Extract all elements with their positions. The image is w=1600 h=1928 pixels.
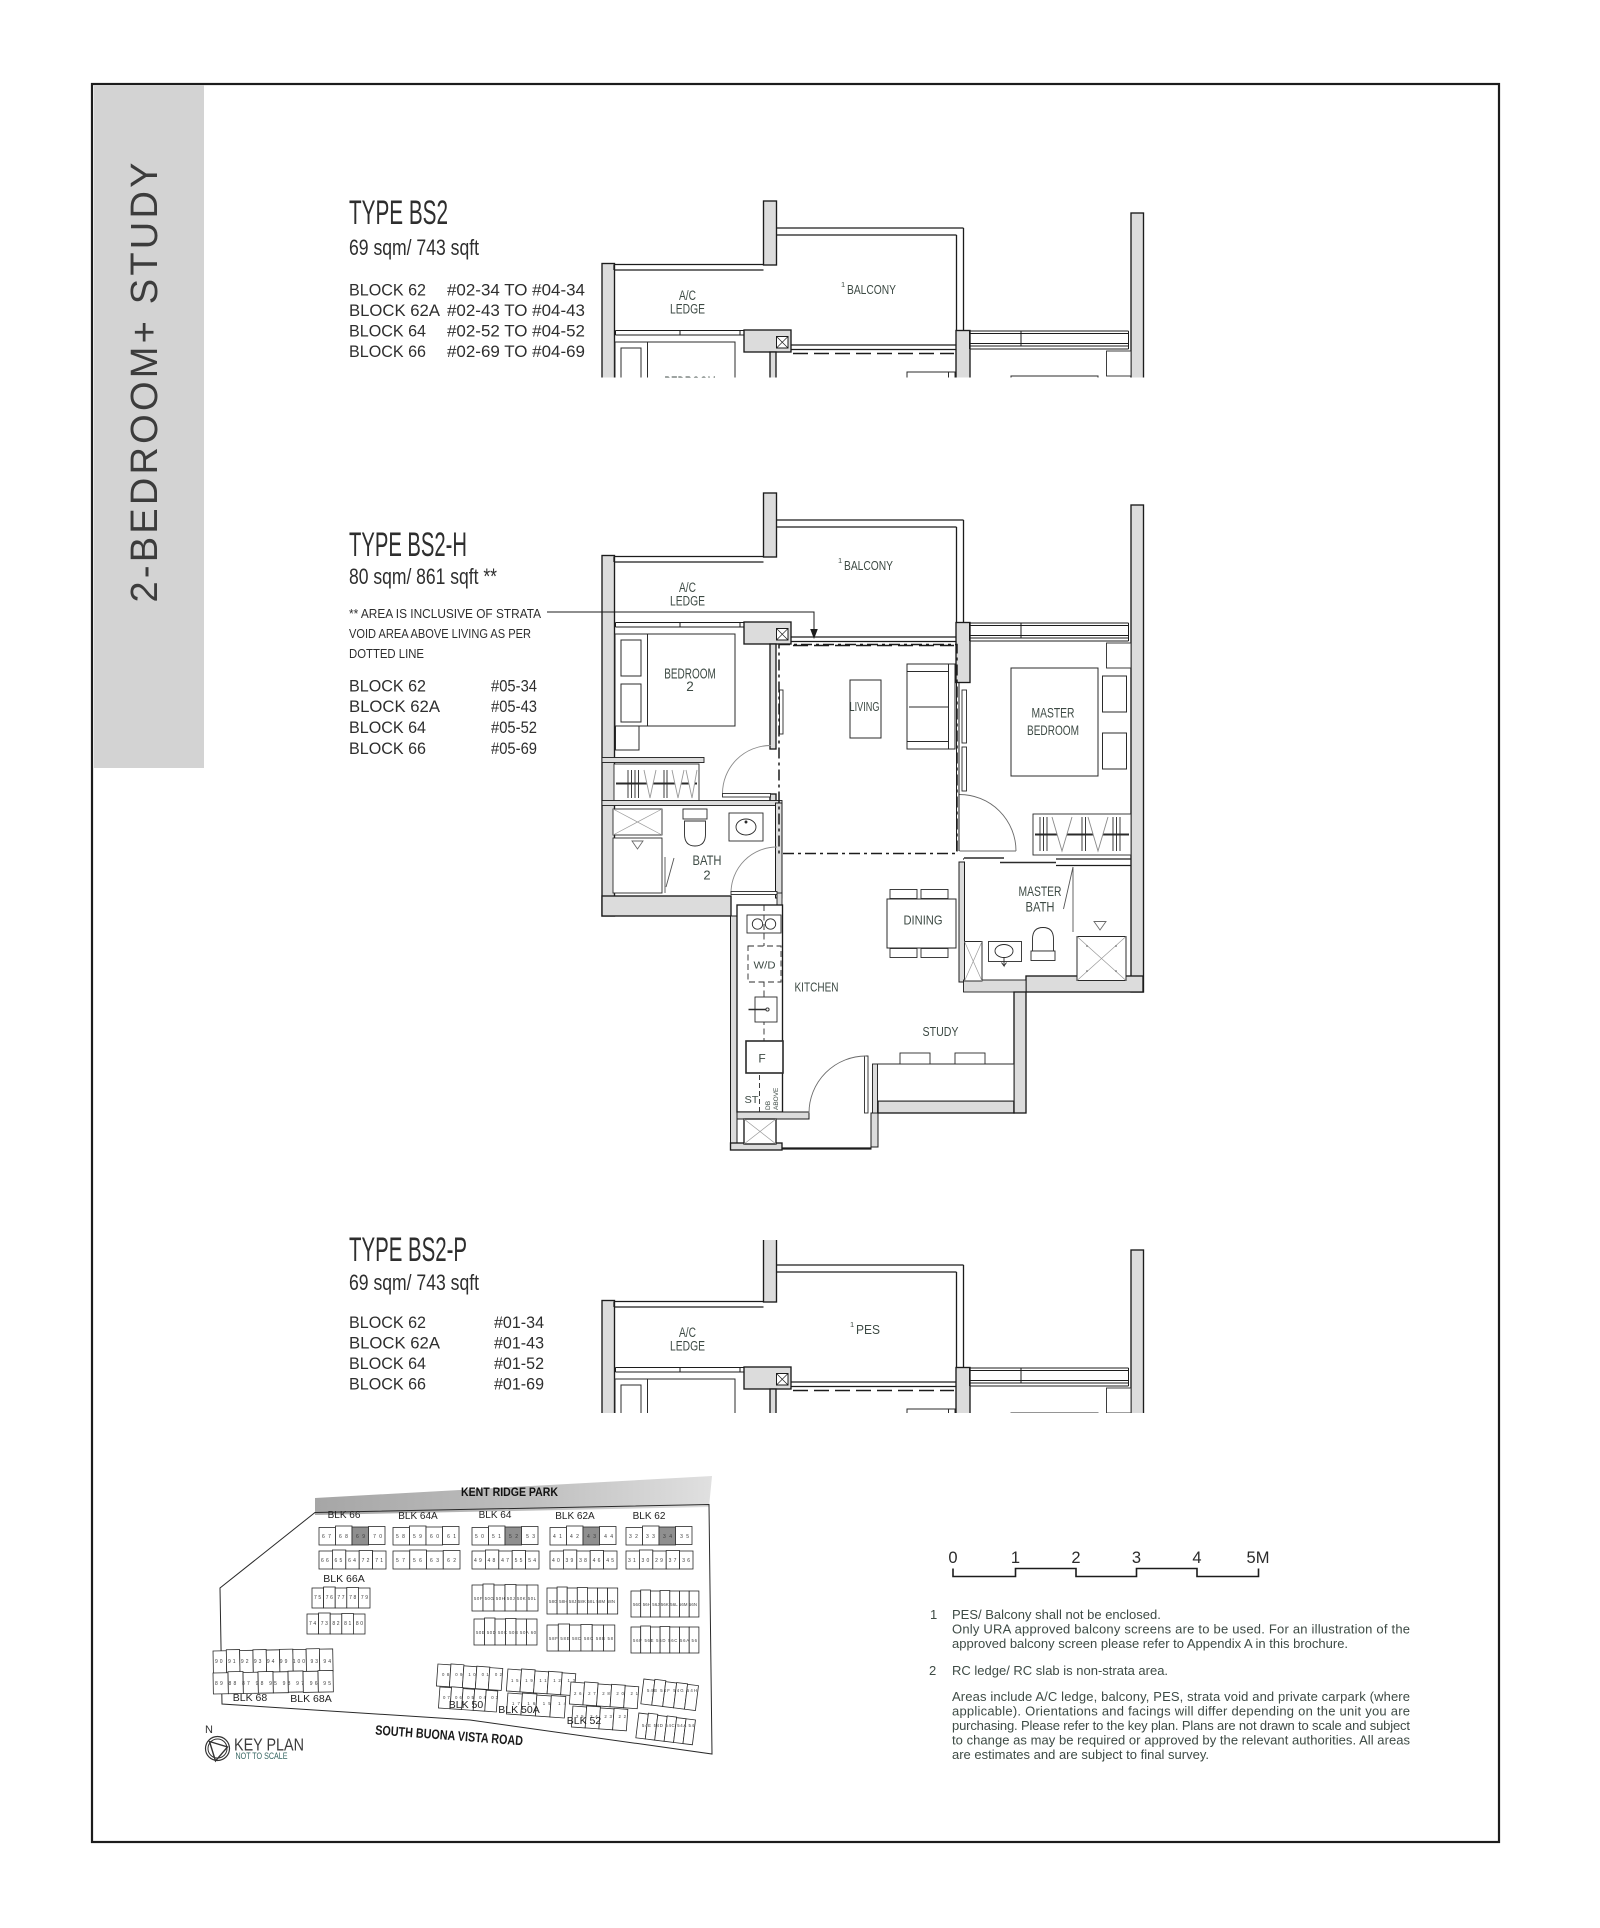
svg-text:80 sqm/ 861 sqft **: 80 sqm/ 861 sqft ** (349, 564, 497, 589)
svg-text:58F 58E 58D 58C 58B 58: 58F 58E 58D 58C 58B 58 (549, 1636, 614, 1641)
svg-text:BLOCK 64: BLOCK 64 (349, 718, 426, 737)
svg-text:50E 50D 50C 50B 50A 60: 50E 50D 50C 50B 50A 60 (476, 1630, 537, 1635)
svg-text:BALCONY: BALCONY (844, 558, 893, 573)
svg-text:BLOCK 62: BLOCK 62 (349, 1313, 426, 1332)
svg-text:#05-43: #05-43 (491, 697, 537, 716)
svg-text:BLOCK 62: BLOCK 62 (349, 281, 426, 300)
svg-text:DOTTED LINE: DOTTED LINE (349, 647, 424, 661)
svg-text:2: 2 (1071, 1549, 1080, 1567)
svg-text:#05-34: #05-34 (491, 677, 537, 696)
svg-text:BLOCK 62A: BLOCK 62A (349, 301, 441, 320)
svg-text:#05-52: #05-52 (491, 718, 537, 737)
svg-text:BLK 62A: BLK 62A (555, 1511, 595, 1522)
svg-text:BLK 62: BLK 62 (633, 1511, 666, 1522)
svg-text:5M: 5M (1247, 1549, 1270, 1567)
svg-text:4: 4 (1192, 1549, 1201, 1567)
svg-text:TYPE BS2-P: TYPE BS2-P (349, 1231, 467, 1269)
svg-text:RC ledge/ RC slab is non-strat: RC ledge/ RC slab is non-strata area. (952, 1663, 1168, 1678)
svg-text:BLOCK 64: BLOCK 64 (349, 322, 426, 341)
svg-text:2-BEDROOM+ STUDY: 2-BEDROOM+ STUDY (124, 159, 166, 603)
svg-text:TYPE BS2: TYPE BS2 (349, 194, 448, 232)
svg-text:BLK 66: BLK 66 (328, 1510, 361, 1521)
svg-text:#02-69 TO #04-69: #02-69 TO #04-69 (447, 342, 585, 361)
svg-text:approved balcony screen please: approved balcony screen please refer to … (952, 1636, 1348, 1651)
svg-text:69 sqm/ 743 sqft: 69 sqm/ 743 sqft (349, 235, 479, 260)
svg-text:NOT TO SCALE: NOT TO SCALE (236, 1751, 288, 1762)
svg-text:74 73 82 81 80: 74 73 82 81 80 (309, 1621, 363, 1627)
svg-text:#01-69: #01-69 (494, 1375, 544, 1394)
svg-text:1: 1 (930, 1607, 937, 1622)
svg-text:VOID AREA ABOVE LIVING AS PER: VOID AREA ABOVE LIVING AS PER (349, 627, 531, 641)
svg-text:50F 50G 50H 50J 50K 50L: 50F 50G 50H 50J 50K 50L (474, 1596, 537, 1601)
svg-text:BLK 52: BLK 52 (567, 1715, 602, 1727)
svg-text:1: 1 (850, 1320, 854, 1329)
svg-text:SOUTH BUONA VISTA ROAD: SOUTH BUONA VISTA ROAD (375, 1723, 524, 1749)
svg-text:TYPE BS2-H: TYPE BS2-H (349, 526, 467, 564)
svg-text:PES/ Balcony shall not be encl: PES/ Balcony shall not be enclosed. (952, 1607, 1161, 1622)
svg-text:2: 2 (929, 1663, 936, 1678)
svg-text:1: 1 (1011, 1549, 1020, 1567)
svg-text:#02-34 TO #04-34: #02-34 TO #04-34 (447, 281, 585, 300)
svg-text:#01-43: #01-43 (494, 1334, 544, 1353)
svg-text:#02-52 TO #04-52: #02-52 TO #04-52 (447, 322, 585, 341)
svg-text:1: 1 (841, 280, 845, 289)
svg-text:BLOCK 62A: BLOCK 62A (349, 697, 441, 716)
svg-text:BLK 68: BLK 68 (233, 1692, 268, 1704)
svg-text:BLOCK 62A: BLOCK 62A (349, 1334, 441, 1353)
svg-text:KENT RIDGE PARK: KENT RIDGE PARK (461, 1485, 558, 1499)
svg-text:Only URA approved balcony scre: Only URA approved balcony screens are to… (952, 1622, 1410, 1637)
svg-text:PES: PES (856, 1322, 880, 1337)
svg-text:purchasing. Please refer to th: purchasing. Please refer to the key plan… (952, 1718, 1410, 1733)
svg-text:54E 54D 54C 54A 54: 54E 54D 54C 54A 54 (642, 1723, 695, 1728)
svg-text:1: 1 (838, 556, 842, 565)
svg-text:#05-69: #05-69 (491, 739, 537, 758)
svg-text:69 sqm/ 743 sqft: 69 sqm/ 743 sqft (349, 1270, 479, 1295)
svg-text:Areas include A/C ledge, balco: Areas include A/C ledge, balcony, PES, s… (952, 1689, 1410, 1704)
svg-text:applicable). Orientations and: applicable). Orientations and facings wi… (952, 1704, 1410, 1719)
svg-text:BLK 64: BLK 64 (479, 1510, 512, 1521)
svg-text:58G 58H 58J 58K 58L 58M 58N: 58G 58H 58J 58K 58L 58M 58N (549, 1599, 615, 1604)
svg-text:BLK 50A: BLK 50A (498, 1704, 539, 1716)
svg-text:BLK 50: BLK 50 (449, 1699, 484, 1711)
svg-text:BLOCK 62: BLOCK 62 (349, 677, 426, 696)
svg-text:56F 56E 56D 56C 56A 56: 56F 56E 56D 56C 56A 56 (633, 1638, 698, 1643)
svg-text:#02-43 TO #04-43: #02-43 TO #04-43 (447, 301, 585, 320)
svg-text:to change as may be required o: to change as may be required or approved… (952, 1733, 1411, 1748)
svg-text:56G 56H 56J 56K 56L 56M 56N: 56G 56H 56J 56K 56L 56M 56N (633, 1602, 697, 1607)
svg-text:0: 0 (948, 1549, 957, 1567)
svg-text:BALCONY: BALCONY (847, 282, 896, 297)
svg-text:BLOCK 66: BLOCK 66 (349, 739, 426, 758)
svg-text:BLK 64A: BLK 64A (398, 1511, 438, 1522)
svg-text:#01-52: #01-52 (494, 1354, 544, 1373)
svg-text:** AREA IS INCLUSIVE OF STRATA: ** AREA IS INCLUSIVE OF STRATA (349, 607, 542, 621)
svg-text:75 76 77 78 79: 75 76 77 78 79 (314, 1595, 368, 1601)
svg-text:3: 3 (1132, 1549, 1141, 1567)
svg-text:BLOCK 64: BLOCK 64 (349, 1354, 426, 1373)
svg-text:BLOCK 66: BLOCK 66 (349, 1375, 426, 1394)
svg-text:BLK 68A: BLK 68A (290, 1693, 331, 1705)
svg-text:54B 54F 54G 54H: 54B 54F 54G 54H (647, 1688, 697, 1693)
svg-text:BLOCK 66: BLOCK 66 (349, 342, 426, 361)
svg-text:#01-34: #01-34 (494, 1313, 544, 1332)
svg-text:are estimates and are subject: are estimates and are subject to final s… (952, 1747, 1209, 1762)
svg-text:BLK 66A: BLK 66A (323, 1573, 364, 1585)
svg-text:N: N (205, 1724, 213, 1736)
